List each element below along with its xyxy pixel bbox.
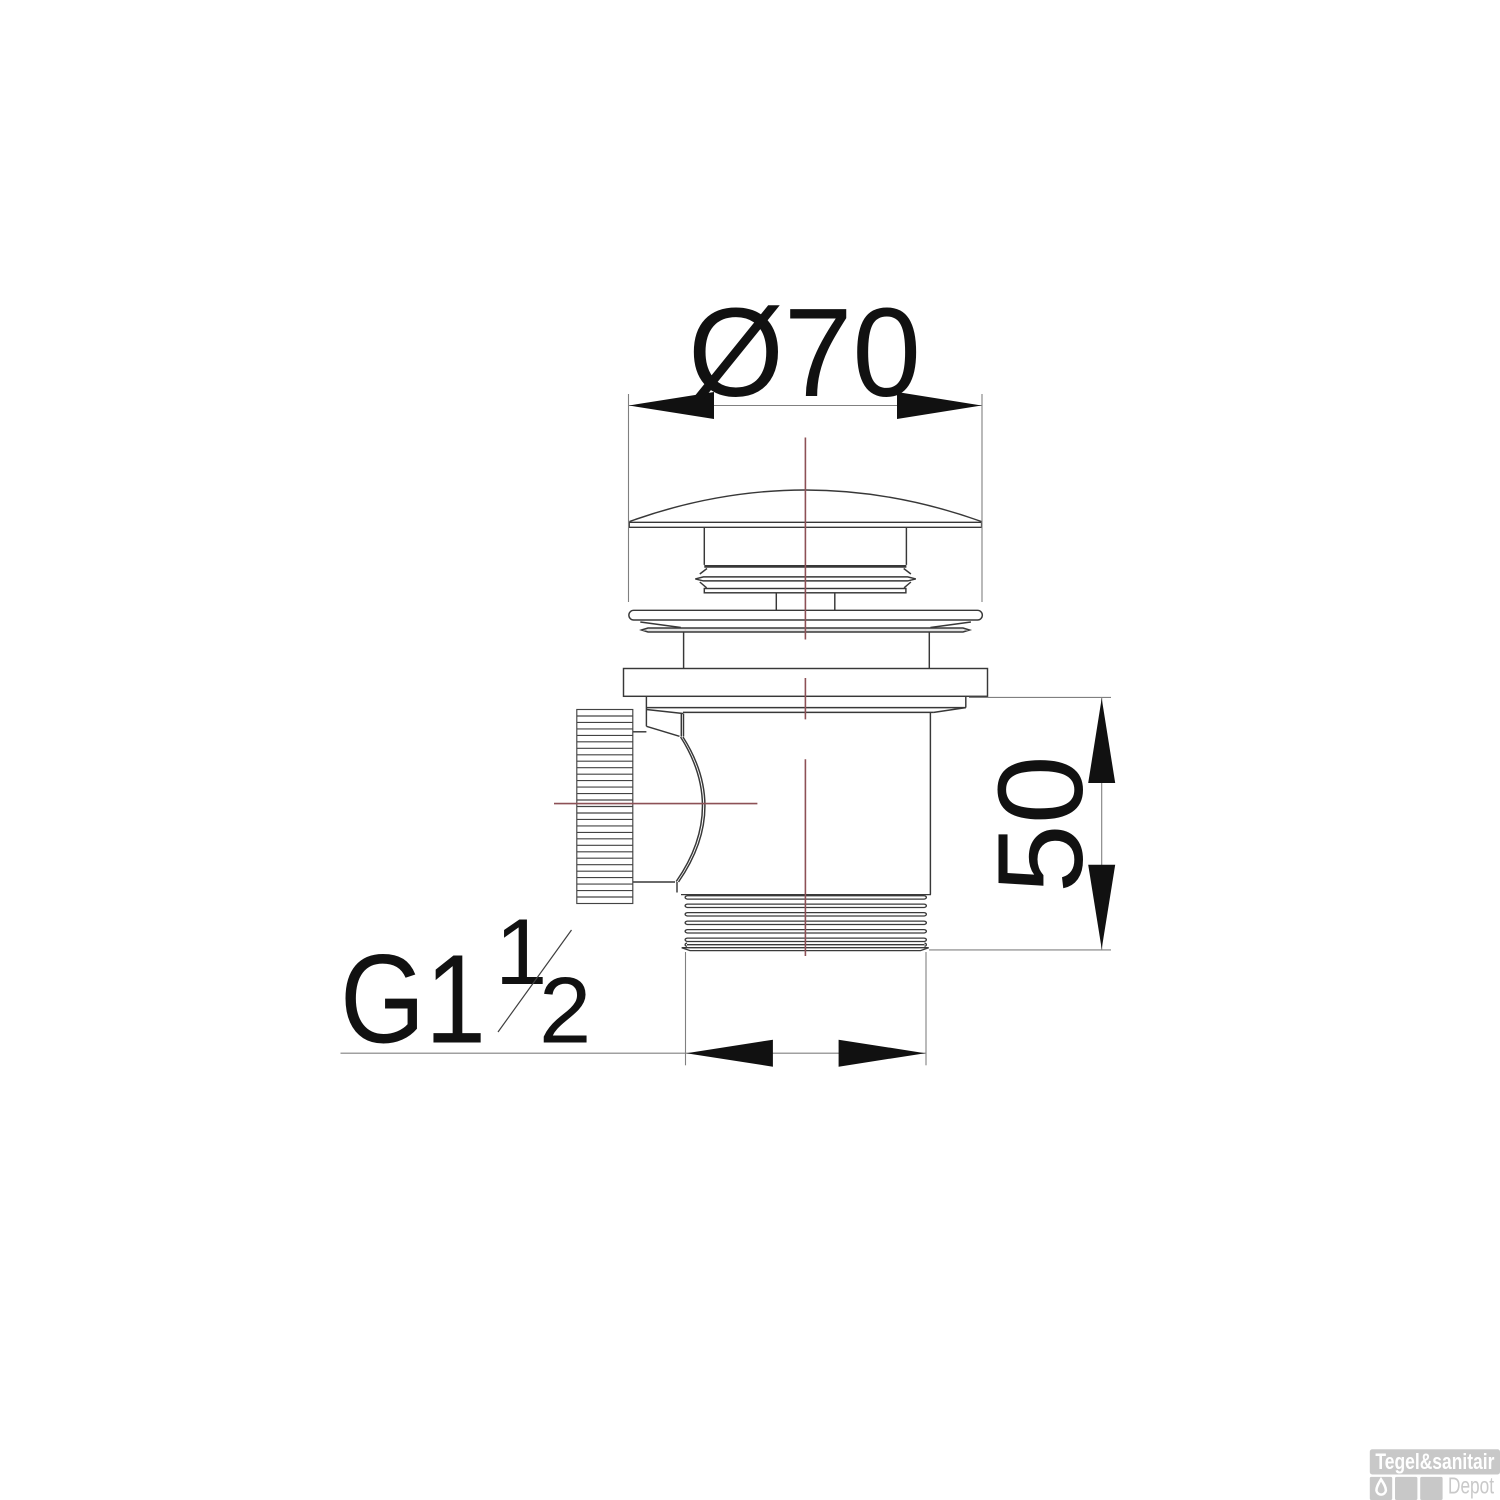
svg-text:Tegel&sanitair: Tegel&sanitair xyxy=(1375,1449,1494,1474)
svg-text:Depot: Depot xyxy=(1448,1473,1494,1499)
svg-text:2: 2 xyxy=(539,958,591,1063)
svg-text:Ø70: Ø70 xyxy=(688,281,921,423)
svg-text:50: 50 xyxy=(973,755,1108,893)
svg-text:G1: G1 xyxy=(340,928,486,1070)
